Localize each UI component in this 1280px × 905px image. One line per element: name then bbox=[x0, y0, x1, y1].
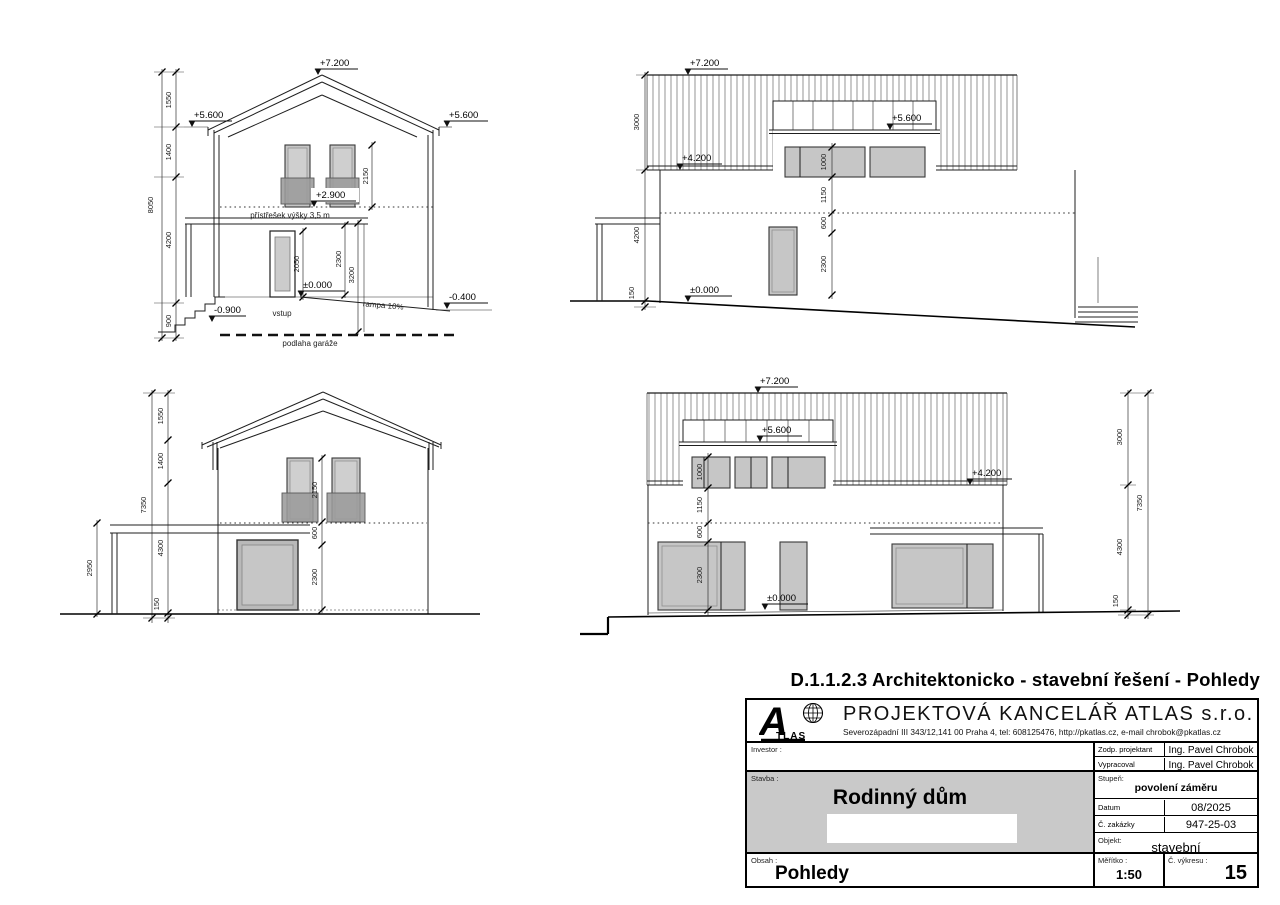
sheet-title: D.1.1.2.3 Architektonicko - stavební řeš… bbox=[740, 669, 1260, 691]
svg-text:2950: 2950 bbox=[85, 560, 94, 577]
zakazka-label: Č. zakázky bbox=[1095, 817, 1165, 833]
svg-text:7350: 7350 bbox=[1135, 495, 1144, 512]
svg-text:2150: 2150 bbox=[361, 168, 370, 185]
vykres-cell: Č. výkresu : 15 bbox=[1165, 854, 1257, 886]
svg-text:1000: 1000 bbox=[695, 464, 704, 481]
drawing-sheet: { "header": { "title": "D.1.1.2.3 Archit… bbox=[0, 0, 1280, 905]
meritko-label: Měřítko : bbox=[1095, 854, 1163, 865]
zodp-label: Zodp. projektant bbox=[1095, 743, 1165, 757]
investor-label: Investor : bbox=[747, 743, 1093, 754]
svg-text:+4.200: +4.200 bbox=[682, 153, 711, 164]
side-right-upper-windows bbox=[785, 147, 925, 177]
svg-text:+7.200: +7.200 bbox=[320, 58, 349, 69]
front-dimension-chain-left: 8050 1550 1400 4200 900 bbox=[146, 69, 184, 342]
side-right-stairs bbox=[1075, 257, 1138, 322]
svg-text:2150: 2150 bbox=[310, 482, 319, 499]
meritko-cell: Měřítko : 1:50 bbox=[1095, 854, 1165, 886]
svg-text:4300: 4300 bbox=[156, 540, 165, 557]
svg-text:+5.600: +5.600 bbox=[449, 110, 478, 121]
elevation-front-drawing: 8050 1550 1400 4200 900 přístřešek výšky… bbox=[140, 45, 500, 350]
svg-text:2300: 2300 bbox=[310, 569, 319, 586]
level-marker-eaves-left: +5.600 bbox=[184, 110, 232, 127]
front-window-left bbox=[281, 145, 314, 207]
svg-text:3200: 3200 bbox=[347, 267, 356, 284]
vykres-value: 15 bbox=[1225, 862, 1247, 885]
side-left-dormer bbox=[679, 420, 837, 446]
level-marker-ramp-end: -0.400 bbox=[436, 292, 492, 310]
svg-text:+5.600: +5.600 bbox=[892, 113, 921, 124]
svg-text:150: 150 bbox=[152, 598, 161, 611]
level-marker-ridge: +7.200 bbox=[685, 58, 728, 75]
zakazka-value: 947-25-03 bbox=[1165, 817, 1257, 833]
side-right-door bbox=[769, 227, 797, 295]
titleblock-company-row: A TLAS PROJEKTOVÁ KANCELÁŘ ATLAS s.r.o. … bbox=[747, 700, 1257, 743]
ramp-dim: 3200 bbox=[347, 220, 362, 336]
company-name: PROJEKTOVÁ KANCELÁŘ ATLAS s.r.o. bbox=[843, 703, 1254, 726]
level-marker-zero: ±0.000 bbox=[685, 285, 732, 302]
dim-label: 8050 bbox=[146, 197, 155, 214]
level-marker-eaves-right: +5.600 bbox=[439, 110, 488, 127]
elevation-rear-drawing: 7350 1550 1400 4300 150 2150 600 2300 29… bbox=[55, 375, 485, 655]
company-address: Severozápadní III 343/12,141 00 Praha 4,… bbox=[843, 727, 1221, 737]
level-marker-entry: -0.900 bbox=[209, 305, 246, 322]
svg-text:7350: 7350 bbox=[139, 497, 148, 514]
sliding-door-right bbox=[892, 544, 993, 608]
svg-text:+5.600: +5.600 bbox=[762, 425, 791, 436]
investor-cell: Investor : bbox=[747, 743, 1095, 772]
objekt-cell: Objekt: stavební bbox=[1095, 834, 1257, 854]
stavba-label: Stavba : bbox=[747, 772, 1093, 783]
objekt-value: stavební bbox=[1095, 840, 1257, 855]
svg-text:600: 600 bbox=[695, 526, 704, 539]
svg-text:+5.600: +5.600 bbox=[194, 110, 223, 121]
svg-text:2300: 2300 bbox=[695, 567, 704, 584]
svg-text:±0.000: ±0.000 bbox=[767, 593, 796, 604]
meritko-value: 1:50 bbox=[1095, 867, 1163, 882]
svg-text:1400: 1400 bbox=[156, 453, 165, 470]
globe-icon bbox=[804, 704, 823, 723]
svg-text:150: 150 bbox=[627, 287, 636, 300]
terrain-retaining-wall bbox=[580, 611, 1180, 634]
svg-text:±0.000: ±0.000 bbox=[303, 280, 332, 291]
level-marker-ridge: +7.200 bbox=[315, 58, 358, 75]
svg-text:3000: 3000 bbox=[632, 114, 641, 131]
stavba-value: Rodinný dům bbox=[747, 786, 1053, 810]
canopy-note: přístřešek výšky 3,5 m bbox=[250, 211, 330, 220]
svg-text:±0.000: ±0.000 bbox=[690, 285, 719, 296]
elevation-side-right-drawing: 3000 4200 150 1000 1150 600 2300 bbox=[560, 45, 1140, 345]
project-meta-cells: Stupeň: povolení záměru Datum 08/2025 Č.… bbox=[1095, 772, 1257, 854]
side-left-upper-windows bbox=[692, 457, 825, 488]
svg-text:2300: 2300 bbox=[334, 251, 343, 268]
dim-label: 1400 bbox=[164, 144, 173, 161]
zodp-value: Ing. Pavel Chrobok bbox=[1165, 743, 1257, 757]
rear-dimension-chain-inner: 1550 1400 4300 150 bbox=[152, 390, 172, 624]
svg-text:+2.900: +2.900 bbox=[316, 190, 345, 201]
svg-text:+7.200: +7.200 bbox=[690, 58, 719, 69]
company-logo: A TLAS bbox=[759, 702, 837, 742]
svg-text:1150: 1150 bbox=[819, 187, 828, 203]
dim-label: 900 bbox=[164, 315, 173, 328]
svg-text:600: 600 bbox=[310, 527, 319, 540]
side-left-dimension-chain-right: 3000 4300 150 7350 bbox=[1111, 390, 1154, 620]
svg-text:150: 150 bbox=[1111, 595, 1120, 608]
svg-text:+7.200: +7.200 bbox=[760, 376, 789, 387]
obsah-cell: Obsah : Pohledy bbox=[747, 854, 1095, 886]
svg-text:600: 600 bbox=[819, 217, 828, 230]
redacted-box bbox=[827, 814, 1017, 843]
dim-label: 1550 bbox=[164, 92, 173, 109]
window-height-dim: 2150 bbox=[361, 142, 376, 211]
svg-text:2050: 2050 bbox=[292, 256, 301, 273]
svg-text:4300: 4300 bbox=[1115, 539, 1124, 556]
vypracoval-value: Ing. Pavel Chrobok bbox=[1165, 758, 1257, 772]
obsah-value: Pohledy bbox=[775, 863, 849, 885]
designer-cells: Zodp. projektant Ing. Pavel Chrobok Vypr… bbox=[1095, 743, 1257, 772]
svg-text:4200: 4200 bbox=[632, 227, 641, 244]
level-marker-ridge: +7.200 bbox=[755, 376, 798, 393]
vypracoval-label: Vypracoval bbox=[1095, 758, 1165, 772]
side-right-wall bbox=[570, 170, 1135, 327]
stupen-cell: Stupeň: povolení záměru bbox=[1095, 772, 1257, 799]
elevation-side-left-drawing: 1000 1150 600 2300 3000 4300 150 7350 +7… bbox=[580, 375, 1180, 660]
garage-door bbox=[237, 540, 298, 610]
stavba-cell: Stavba : Rodinný dům bbox=[747, 772, 1095, 854]
stupen-value: povolení záměru bbox=[1095, 782, 1257, 794]
svg-text:-0.900: -0.900 bbox=[214, 305, 241, 316]
garage-floor-label: podlaha garáže bbox=[282, 339, 338, 348]
titleblock: A TLAS PROJEKTOVÁ KANCELÁŘ ATLAS s.r.o. … bbox=[745, 698, 1259, 888]
svg-text:1550: 1550 bbox=[156, 408, 165, 425]
datum-value: 08/2025 bbox=[1165, 800, 1257, 816]
svg-text:3000: 3000 bbox=[1115, 429, 1124, 446]
svg-text:-0.400: -0.400 bbox=[449, 292, 476, 303]
svg-text:+4.200: +4.200 bbox=[972, 468, 1001, 479]
opening-dim: 2300 bbox=[334, 222, 349, 299]
svg-text:1000: 1000 bbox=[819, 154, 828, 171]
svg-text:1150: 1150 bbox=[695, 497, 704, 513]
entrance-label: vstup bbox=[272, 309, 292, 318]
svg-text:2300: 2300 bbox=[819, 256, 828, 273]
dim-label: 4200 bbox=[164, 232, 173, 249]
datum-label: Datum bbox=[1095, 800, 1165, 816]
ramp-label: rampa 10% bbox=[362, 299, 404, 312]
rear-window-right bbox=[327, 458, 365, 522]
carport-height-dim: 2950 bbox=[85, 520, 101, 618]
